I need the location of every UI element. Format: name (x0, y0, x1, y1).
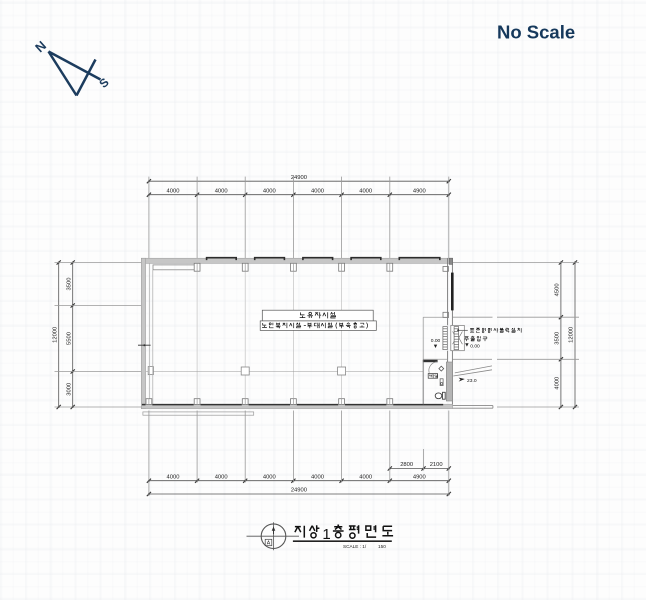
svg-text:23.0: 23.0 (467, 378, 477, 384)
svg-text:2100: 2100 (430, 462, 443, 468)
svg-text:4000: 4000 (215, 188, 228, 194)
svg-text:4000: 4000 (263, 188, 276, 194)
svg-text:0.00: 0.00 (470, 343, 480, 349)
svg-text:150: 150 (378, 544, 386, 549)
svg-text:3500: 3500 (554, 332, 560, 345)
svg-text:4000: 4000 (263, 474, 276, 480)
svg-text:4000: 4000 (359, 474, 372, 480)
svg-text:4900: 4900 (413, 188, 426, 194)
svg-text:No Scale: No Scale (497, 22, 575, 43)
svg-text:SCALE : 1/: SCALE : 1/ (343, 544, 367, 549)
svg-text:4500: 4500 (554, 283, 560, 296)
svg-text:4000: 4000 (215, 474, 228, 480)
svg-text:4900: 4900 (413, 474, 426, 480)
svg-text:12000: 12000 (569, 327, 575, 343)
svg-text:4000: 4000 (167, 474, 180, 480)
svg-text:4000: 4000 (359, 188, 372, 194)
svg-text:24900: 24900 (291, 488, 307, 494)
svg-text:3500: 3500 (66, 278, 72, 291)
svg-text:3000: 3000 (66, 383, 72, 396)
svg-text:12000: 12000 (52, 327, 58, 343)
svg-text:4000: 4000 (167, 188, 180, 194)
svg-text:4000: 4000 (311, 188, 324, 194)
svg-text:S: S (96, 75, 111, 91)
svg-text:0.00: 0.00 (431, 338, 441, 344)
svg-text:4000: 4000 (311, 474, 324, 480)
svg-text:N: N (32, 38, 49, 55)
svg-text:A: A (267, 541, 271, 547)
svg-text:2800: 2800 (400, 462, 413, 468)
svg-text:5500: 5500 (66, 332, 72, 345)
svg-text:4000: 4000 (554, 377, 560, 390)
